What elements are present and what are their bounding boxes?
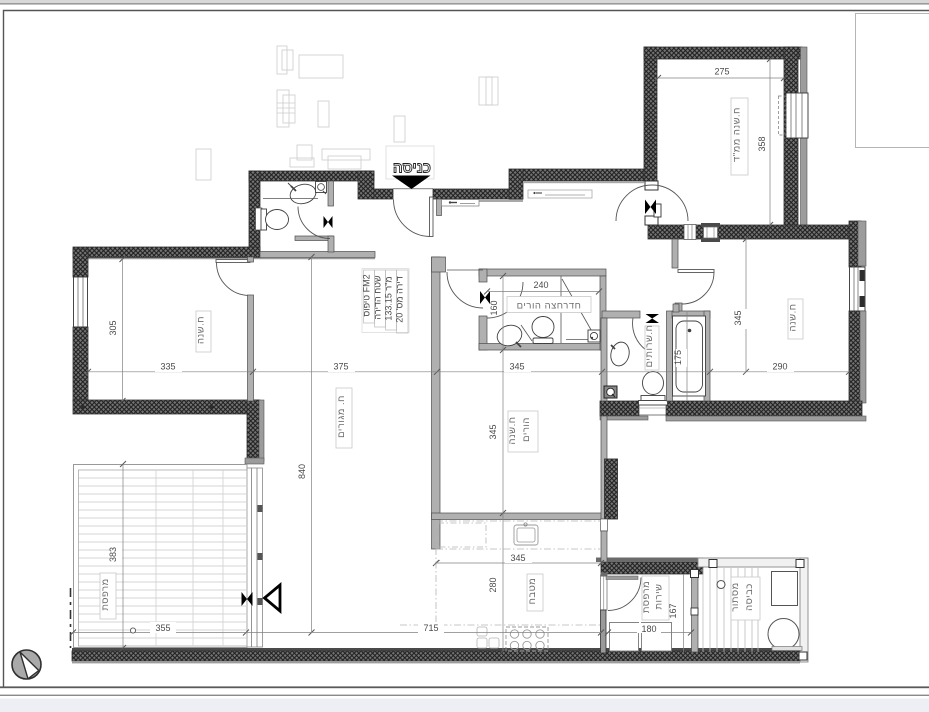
svg-text:שטח הדירה: שטח הדירה	[373, 275, 383, 320]
svg-text:280: 280	[488, 577, 498, 592]
svg-text:כניסה: כניסה	[393, 161, 431, 177]
svg-text:305: 305	[108, 320, 118, 335]
svg-text:כביסה: כביסה	[744, 583, 755, 611]
svg-text:מסתור: מסתור	[730, 582, 741, 611]
svg-text:הורים: הורים	[521, 417, 532, 442]
svg-text:383: 383	[108, 547, 118, 562]
svg-text:335: 335	[160, 362, 175, 372]
svg-text:חדרחצה הורים: חדרחצה הורים	[517, 301, 582, 312]
svg-text:275: 275	[714, 67, 729, 77]
svg-text:מרפסת: מרפסת	[641, 581, 652, 613]
svg-text:מטבח: מטבח	[527, 578, 538, 605]
svg-text:240: 240	[533, 280, 548, 290]
svg-text:345: 345	[488, 424, 498, 439]
svg-text:ח.שנה: ח.שנה	[788, 303, 799, 331]
svg-text:ח.שנה: ח.שנה	[196, 316, 207, 344]
svg-text:355: 355	[155, 623, 170, 633]
svg-text:133.15 מ"ר: 133.15 מ"ר	[384, 276, 394, 320]
svg-text:375: 375	[333, 362, 348, 372]
svg-text:180: 180	[641, 624, 656, 634]
svg-text:715: 715	[423, 623, 438, 633]
svg-text:290: 290	[772, 362, 787, 372]
svg-text:מרפסת: מרפסת	[100, 578, 111, 610]
svg-text:840: 840	[297, 464, 307, 479]
svg-text:דירה מס' 20: דירה מס' 20	[395, 276, 405, 322]
svg-text:ח.שרותים: ח.שרותים	[644, 325, 655, 368]
svg-text:167: 167	[668, 603, 678, 618]
svg-text:345: 345	[509, 362, 524, 372]
svg-text:ח. מגורים: ח. מגורים	[336, 395, 347, 438]
svg-text:175: 175	[673, 350, 683, 365]
svg-text:345: 345	[510, 553, 525, 563]
svg-text:טיפוס FM2: טיפוס FM2	[362, 274, 372, 316]
svg-text:358: 358	[757, 136, 767, 151]
svg-text:345: 345	[733, 310, 743, 325]
svg-text:ח.שנה ממ"ד: ח.שנה ממ"ד	[732, 107, 743, 162]
svg-text:שירות: שירות	[654, 583, 665, 609]
svg-text:160: 160	[489, 300, 499, 315]
svg-text:ח.שנה: ח.שנה	[507, 416, 518, 444]
